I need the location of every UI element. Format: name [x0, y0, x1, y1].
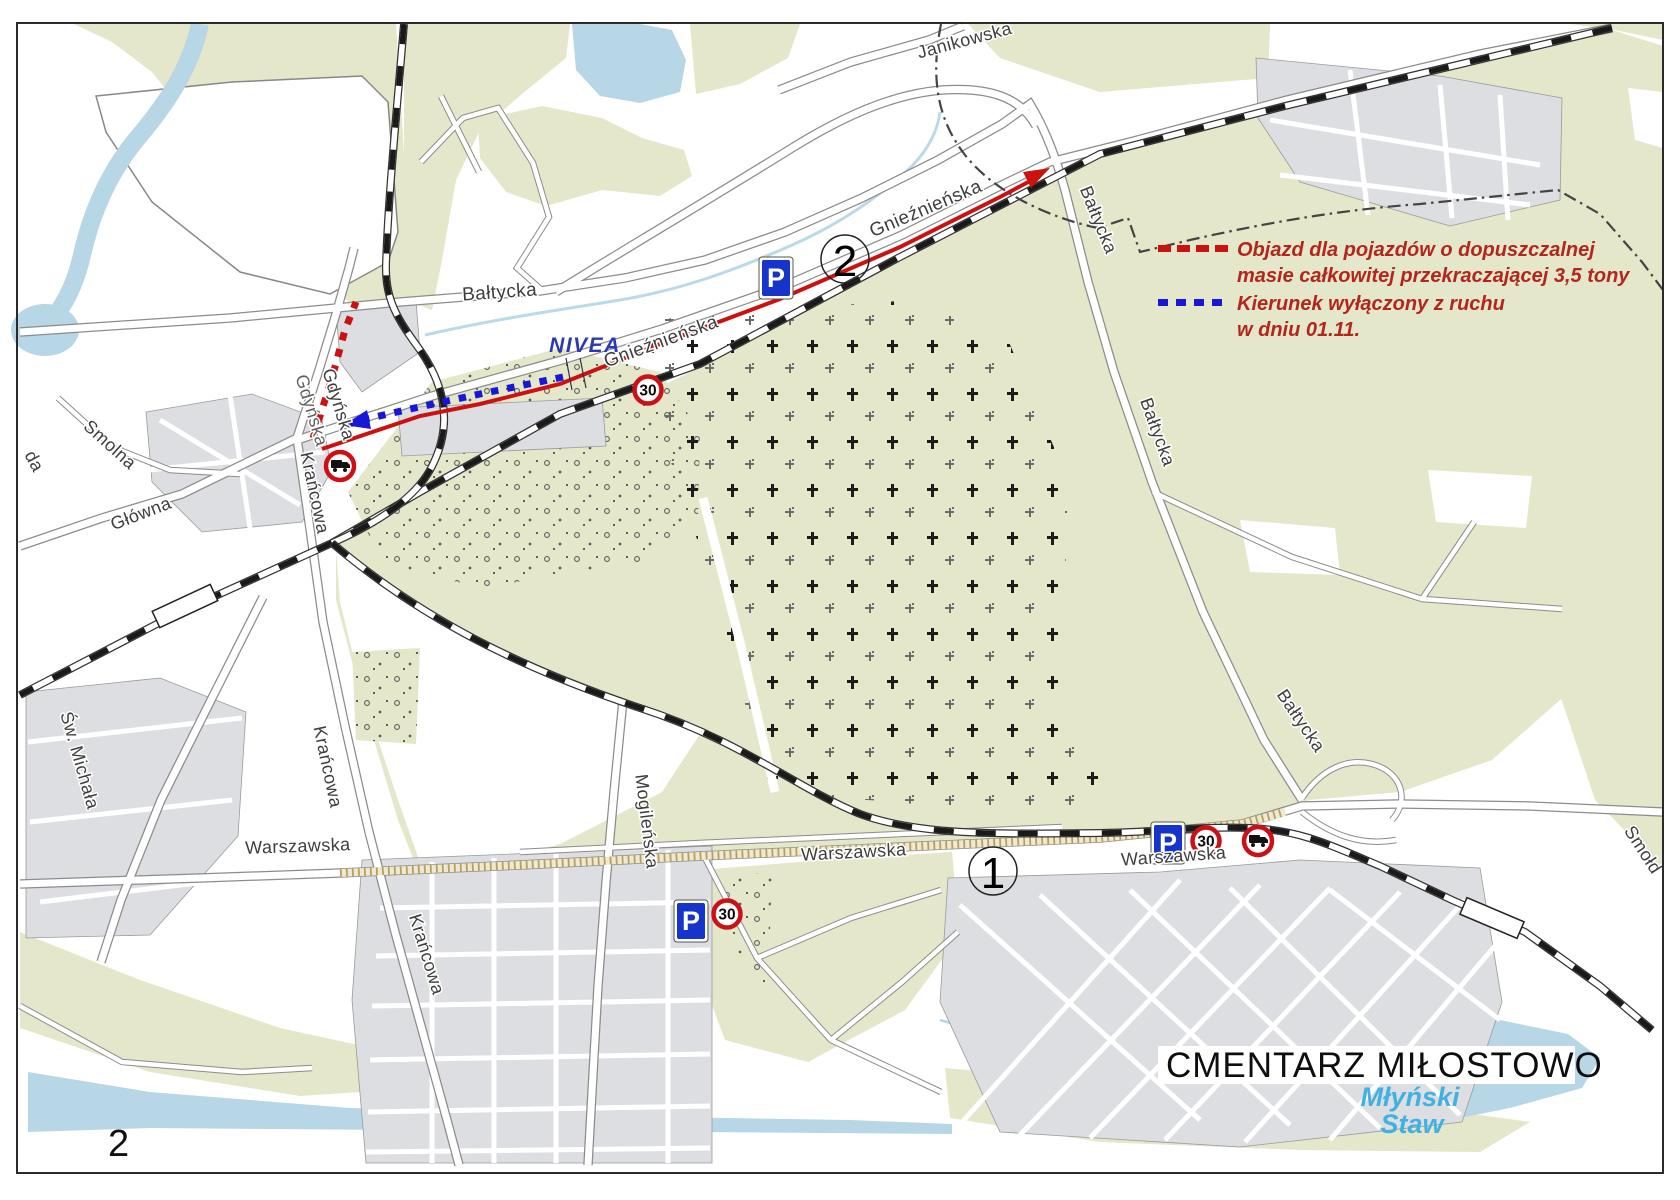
legend-detour-line2: masie całkowitej przekraczającej 3,5 ton…: [1237, 265, 1630, 287]
route-point-1-number: 1: [981, 849, 1005, 898]
speed-limit-sign-2: [714, 901, 741, 928]
parking-sign-2: [674, 900, 708, 942]
page-number: 2: [108, 1123, 129, 1165]
nivea-label: NIVEA: [549, 334, 621, 357]
legend-detour-line1: Objazd dla pojazdów o dopuszczalnej: [1237, 239, 1595, 261]
route-point-2-number: 2: [833, 237, 857, 286]
pond-name-line2: Staw: [1380, 1109, 1445, 1139]
no-trucks-sign-1: [326, 452, 354, 480]
legend-closed-line2: w dniu 01.11.: [1237, 319, 1360, 341]
parking-sign-1: [759, 257, 793, 299]
map-canvas: P 30: [0, 0, 1680, 1200]
no-trucks-sign-2: [1244, 827, 1272, 855]
pond-name-line1: Młyński: [1360, 1082, 1460, 1112]
cemetery-title: CMENTARZ MIŁOSTOWO: [1166, 1046, 1603, 1085]
legend-closed-line1: Kierunek wyłączony z ruchu: [1237, 293, 1505, 315]
detour-map-page: P 30: [0, 0, 1680, 1200]
street-label-warszawska-1: Warszawska: [245, 834, 352, 858]
speed-limit-sign-1: [635, 377, 662, 404]
